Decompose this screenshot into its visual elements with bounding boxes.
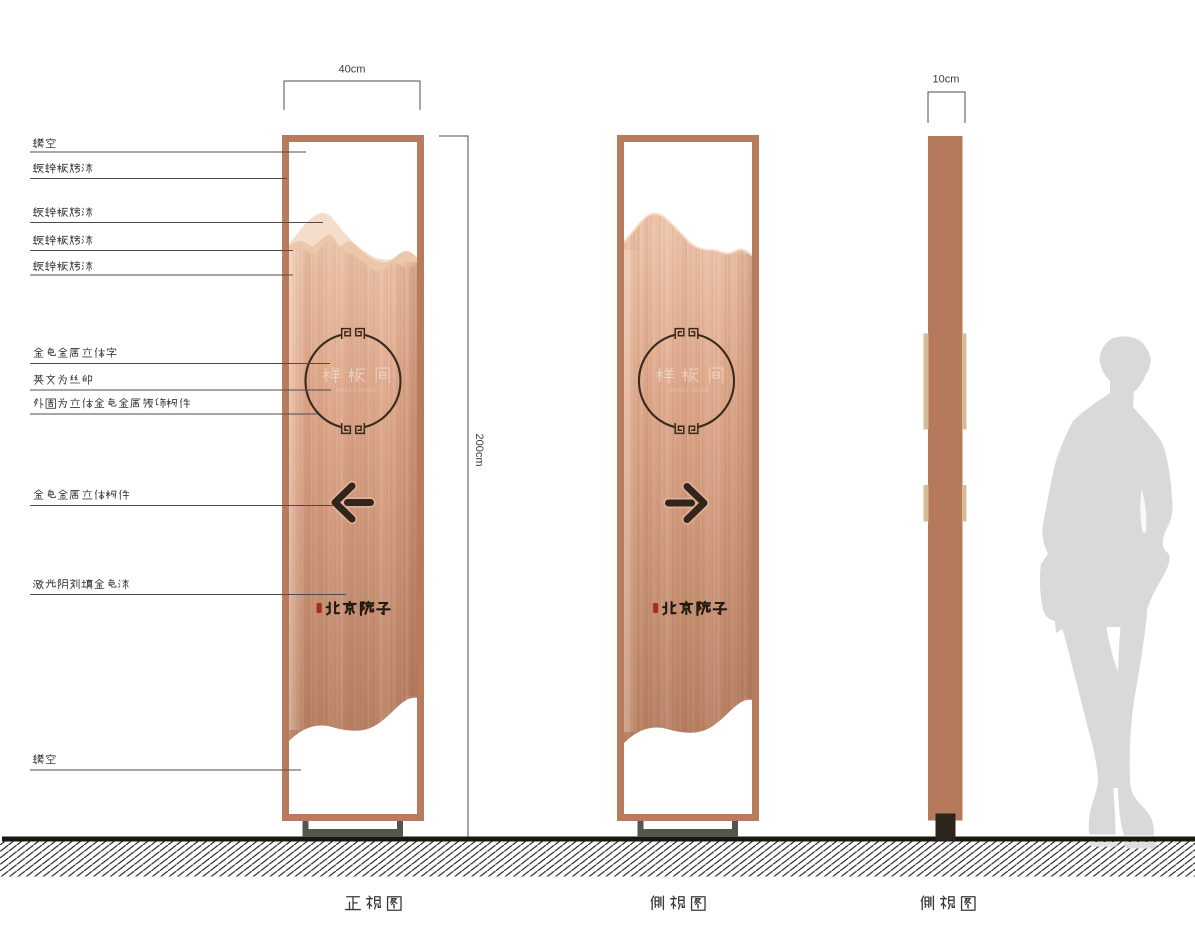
svg-text:MODEL ROOM: MODEL ROOM: [336, 388, 377, 394]
svg-text:MODEL ROOM: MODEL ROOM: [669, 388, 710, 394]
svg-text:40cm: 40cm: [339, 64, 366, 76]
svg-text:200cm: 200cm: [473, 433, 485, 466]
svg-text:10cm: 10cm: [933, 74, 960, 86]
